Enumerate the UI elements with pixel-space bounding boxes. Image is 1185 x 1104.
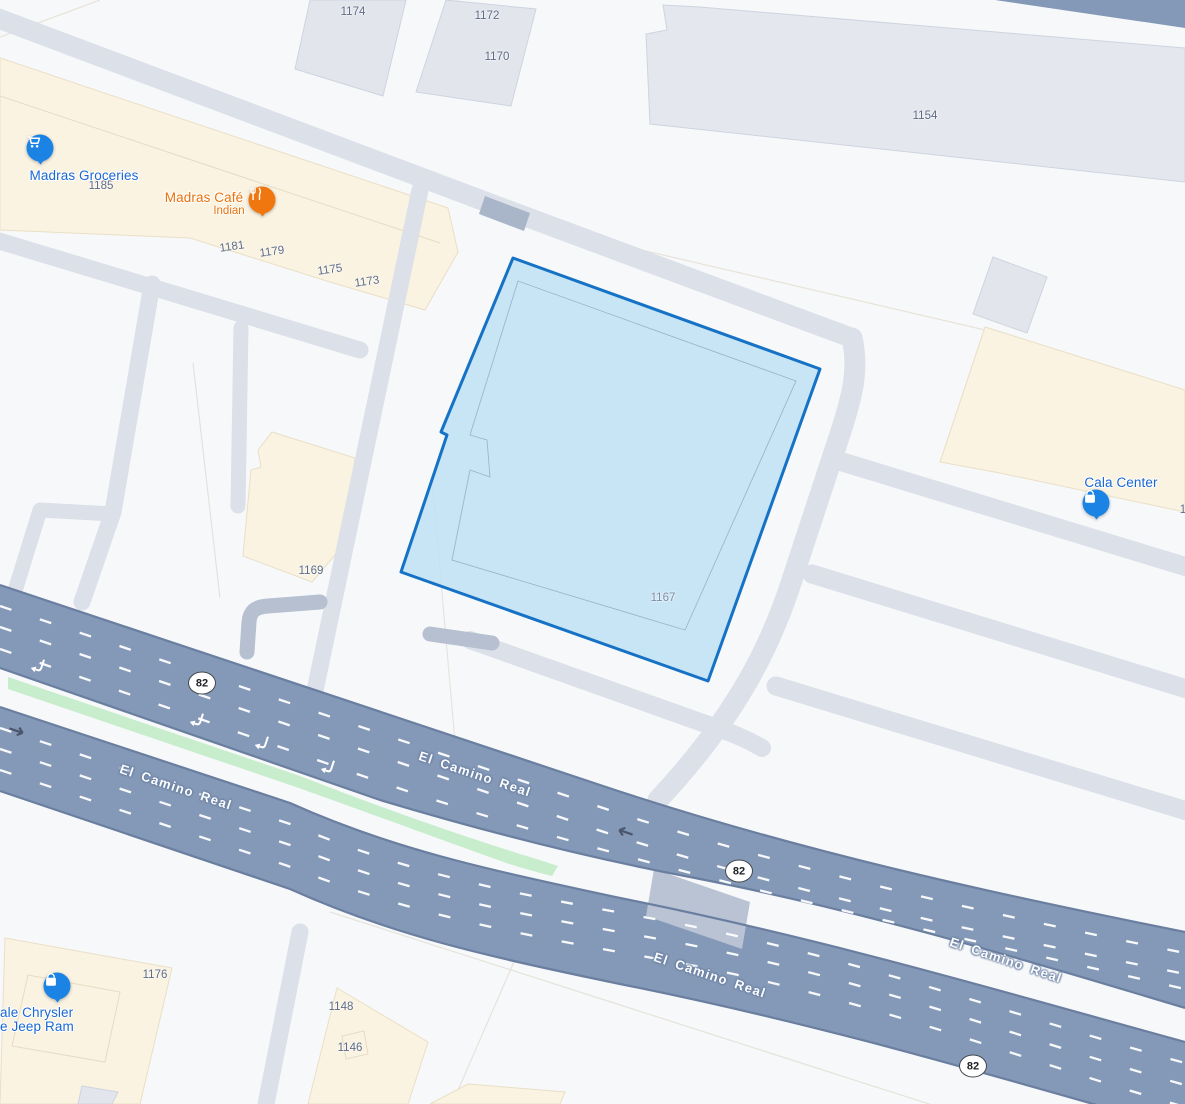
address-label: 1175 xyxy=(317,262,343,277)
poi-label[interactable]: Madras Groceries xyxy=(30,169,139,183)
route-82-shield: 82 xyxy=(188,672,216,695)
address-label: 1169 xyxy=(299,565,324,577)
poi-label[interactable]: Madras Café xyxy=(165,191,243,205)
shopping-cart-pin[interactable] xyxy=(27,135,54,162)
address-label: 1172 xyxy=(475,10,500,22)
road-name-label: El Camino Real xyxy=(652,949,768,1000)
poi-label[interactable]: Cala Center xyxy=(1084,476,1157,490)
shopping-bag-pin[interactable] xyxy=(44,973,71,1000)
shopping-cart-icon xyxy=(27,135,54,162)
road-name-label: El Camino Real xyxy=(118,761,234,812)
address-label: 1179 xyxy=(259,244,285,259)
address-label: 1146 xyxy=(338,1042,363,1054)
road-name-label: El Camino Real xyxy=(948,934,1064,985)
shopping-bag-pin[interactable] xyxy=(1083,490,1110,517)
poi-label[interactable]: ale Chrysler e Jeep Ram xyxy=(0,1006,74,1034)
road-name-label: El Camino Real xyxy=(417,748,533,799)
address-label: 1173 xyxy=(354,274,380,289)
address-label: 1176 xyxy=(143,969,168,981)
address-label: 1181 xyxy=(219,239,245,254)
address-label: 1174 xyxy=(341,6,366,18)
map-canvas[interactable]: 1174117211701154118511811179117511731169… xyxy=(0,0,1185,1104)
restaurant-pin[interactable] xyxy=(249,187,276,214)
map-labels-layer: 1174117211701154118511811179117511731169… xyxy=(0,0,1185,1104)
address-label: 1170 xyxy=(485,51,510,63)
restaurant-icon xyxy=(249,187,276,214)
address-label: 1148 xyxy=(329,1001,354,1013)
poi-subtitle: Indian xyxy=(213,205,244,217)
address-label: 1 xyxy=(1180,504,1185,516)
shopping-bag-icon xyxy=(1083,490,1110,517)
parcel-number-label: 1167 xyxy=(651,592,676,604)
route-82-shield: 82 xyxy=(725,860,753,883)
address-label: 1154 xyxy=(913,110,938,122)
shopping-bag-icon xyxy=(44,973,71,1000)
route-82-shield: 82 xyxy=(959,1055,987,1078)
